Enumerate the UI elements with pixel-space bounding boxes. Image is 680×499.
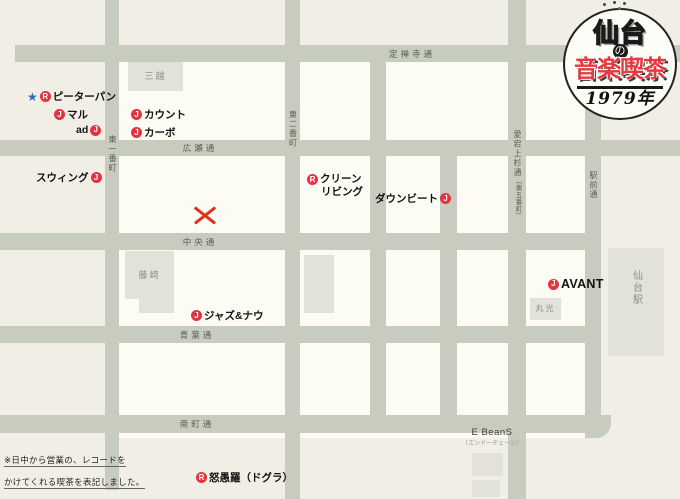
building-marumitsu: 丸光 bbox=[530, 298, 561, 320]
building-ebeans-block-1 bbox=[472, 453, 503, 476]
venue-label: マル bbox=[67, 107, 88, 122]
building-fujisaki: 藤崎 bbox=[125, 251, 174, 299]
title-badge-circle: 仙台 の 音楽喫茶 1979年 bbox=[563, 8, 677, 120]
building-unlabeled-block bbox=[304, 255, 334, 313]
street-label-higashi-nibancho: 東二番町 bbox=[289, 110, 297, 148]
x-mark bbox=[193, 204, 217, 226]
venue-maru: J マル bbox=[54, 107, 88, 122]
badge-city-title: 仙台 bbox=[593, 20, 647, 46]
building-label-fujisaki: 藤崎 bbox=[138, 271, 160, 280]
venue-label: ジャズ&ナウ bbox=[204, 308, 264, 323]
badge-ornament-dots-icon bbox=[603, 3, 606, 6]
star-icon: ★ bbox=[27, 91, 38, 103]
building-mitsukoshi: 三越 bbox=[128, 62, 183, 91]
venue-label: カウント bbox=[144, 107, 186, 122]
venue-swing: スウィング J bbox=[36, 170, 102, 185]
building-label-ebeans: E BeanS 〔エンドーチェーン〕 bbox=[452, 427, 532, 447]
street-higashi-nibancho: 東二番町 bbox=[285, 0, 300, 499]
jazz-cafe-marker-icon: J bbox=[191, 310, 202, 321]
badge-main-title: 音楽喫茶 bbox=[574, 57, 666, 83]
venue-label: ad bbox=[76, 124, 88, 136]
jazz-cafe-marker-icon: J bbox=[131, 127, 142, 138]
record-cafe-marker-icon: R bbox=[196, 472, 207, 483]
badge-year: 1979年 bbox=[585, 91, 654, 108]
street-atago-kamisugi-dori: 愛宕上杉通〔東五番町〕 bbox=[508, 0, 526, 499]
building-fujisaki-annex bbox=[139, 299, 174, 313]
street-label-ekimae: 駅前通 bbox=[589, 171, 597, 200]
venue-dogura: R 怒愚羅（ドグラ） bbox=[196, 470, 293, 485]
street-label-hirose: 広瀬通 bbox=[160, 144, 240, 153]
jazz-cafe-marker-icon: J bbox=[440, 193, 451, 204]
street-label-aoba: 青葉通 bbox=[157, 330, 237, 339]
jazz-cafe-marker-icon: J bbox=[91, 172, 102, 183]
venue-clean-living: R クリーン リビング bbox=[307, 173, 363, 199]
title-badge: 仙台 の 音楽喫茶 1979年 bbox=[563, 8, 677, 120]
jazz-cafe-marker-icon: J bbox=[90, 125, 101, 136]
venue-kabo: J カーボ bbox=[131, 125, 176, 140]
venue-label: クリーン bbox=[320, 173, 361, 186]
venue-peter-pan: ★ R ピーターパン bbox=[27, 89, 116, 104]
street-label-atago-kamisugi: 愛宕上杉通〔東五番町〕 bbox=[513, 130, 521, 220]
record-cafe-marker-icon: R bbox=[307, 174, 318, 185]
jazz-cafe-marker-icon: J bbox=[548, 279, 559, 290]
footnote-line1: ※日中から営業の、レコードを bbox=[4, 455, 126, 467]
record-cafe-marker-icon: R bbox=[40, 91, 51, 102]
map-footnote: ※日中から営業の、レコードを かけてくれる喫茶を表記しました。 bbox=[4, 450, 145, 494]
venue-label: ピーターパン bbox=[53, 89, 116, 104]
street-vertical-a bbox=[370, 50, 386, 433]
venue-label: 怒愚羅（ドグラ） bbox=[209, 470, 293, 485]
sendai-music-cafe-map-1979: 定禅寺通 広瀬通 中央通 青葉通 南町通 東一番町 東二番町 愛宕上杉通〔東五番… bbox=[0, 0, 680, 499]
jazz-cafe-marker-icon: J bbox=[131, 109, 142, 120]
venue-jazz-and-now: J ジャズ&ナウ bbox=[191, 308, 264, 323]
building-sendai-station: 仙台駅 bbox=[608, 248, 664, 356]
street-label-higashi-ichibancho: 東一番町 bbox=[108, 135, 116, 173]
venue-count: J カウント bbox=[131, 107, 186, 122]
venue-avant: J AVANT bbox=[548, 277, 604, 291]
venue-label: カーボ bbox=[144, 125, 176, 140]
footnote-line2: かけてくれる喫茶を表記しました。 bbox=[4, 477, 145, 489]
street-hirose-dori: 広瀬通 bbox=[0, 140, 680, 156]
venue-ad: ad J bbox=[76, 124, 101, 136]
street-label-minamimachi: 南町通 bbox=[157, 420, 237, 429]
venue-label: スウィング bbox=[36, 170, 89, 185]
venue-label: AVANT bbox=[561, 277, 604, 291]
jazz-cafe-marker-icon: J bbox=[54, 109, 65, 120]
building-ebeans-block-2 bbox=[472, 480, 500, 497]
building-label-sendai-station: 仙台駅 bbox=[629, 270, 644, 306]
venue-label: ダウンビート bbox=[375, 191, 438, 206]
building-label-marumitsu: 丸光 bbox=[536, 305, 556, 313]
venue-label-line2: リビング bbox=[307, 186, 363, 199]
street-higashi-ichibancho: 東一番町 bbox=[105, 0, 119, 490]
venue-downbeat: ダウンビート J bbox=[375, 191, 451, 206]
street-label-chuo: 中央通 bbox=[160, 237, 240, 246]
building-label-mitsukoshi: 三越 bbox=[144, 72, 166, 81]
